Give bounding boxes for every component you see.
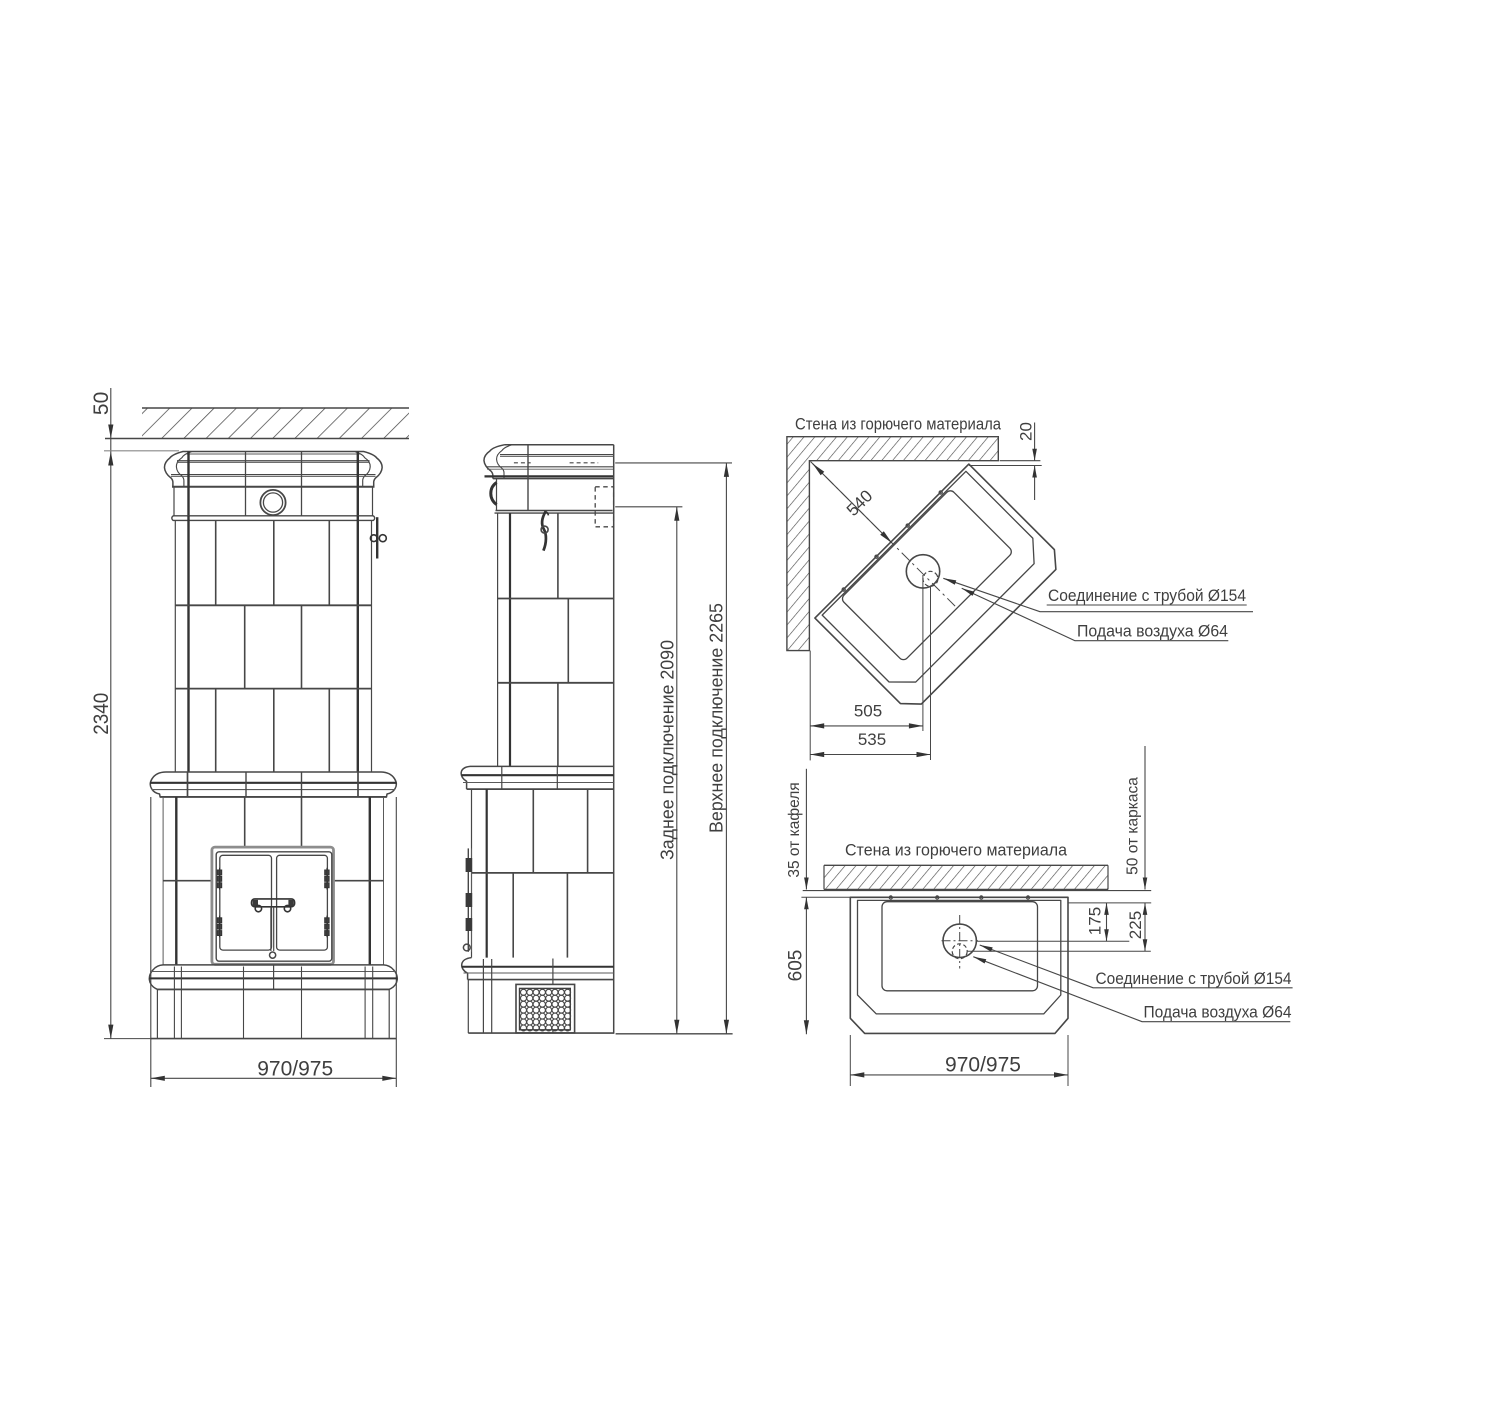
svg-text:535: 535 (858, 730, 886, 749)
svg-text:50 от каркаса: 50 от каркаса (1125, 777, 1142, 875)
svg-text:Подача воздуха Ø64: Подача воздуха Ø64 (1144, 1004, 1292, 1022)
svg-text:Стена из горючего материала: Стена из горючего материала (845, 842, 1068, 860)
svg-text:50: 50 (90, 392, 113, 415)
svg-text:505: 505 (854, 702, 882, 721)
svg-text:Соединение с трубой Ø154: Соединение с трубой Ø154 (1096, 970, 1292, 988)
svg-text:970/975: 970/975 (257, 1058, 333, 1081)
svg-text:2340: 2340 (90, 693, 113, 735)
svg-text:Стена из горючего материала: Стена из горючего материала (795, 416, 1002, 434)
svg-text:Подача воздуха Ø64: Подача воздуха Ø64 (1077, 623, 1228, 641)
svg-text:225: 225 (1126, 911, 1145, 939)
svg-text:Заднее подключение 2090: Заднее подключение 2090 (657, 640, 678, 860)
svg-text:Верхнее подключение 2265: Верхнее подключение 2265 (706, 603, 727, 833)
svg-text:970/975: 970/975 (945, 1054, 1021, 1077)
svg-text:605: 605 (786, 950, 807, 982)
svg-text:20: 20 (1017, 422, 1036, 441)
svg-text:35 от кафеля: 35 от кафеля (786, 782, 803, 877)
svg-text:Соединение с трубой Ø154: Соединение с трубой Ø154 (1048, 587, 1246, 605)
svg-text:175: 175 (1086, 907, 1105, 935)
